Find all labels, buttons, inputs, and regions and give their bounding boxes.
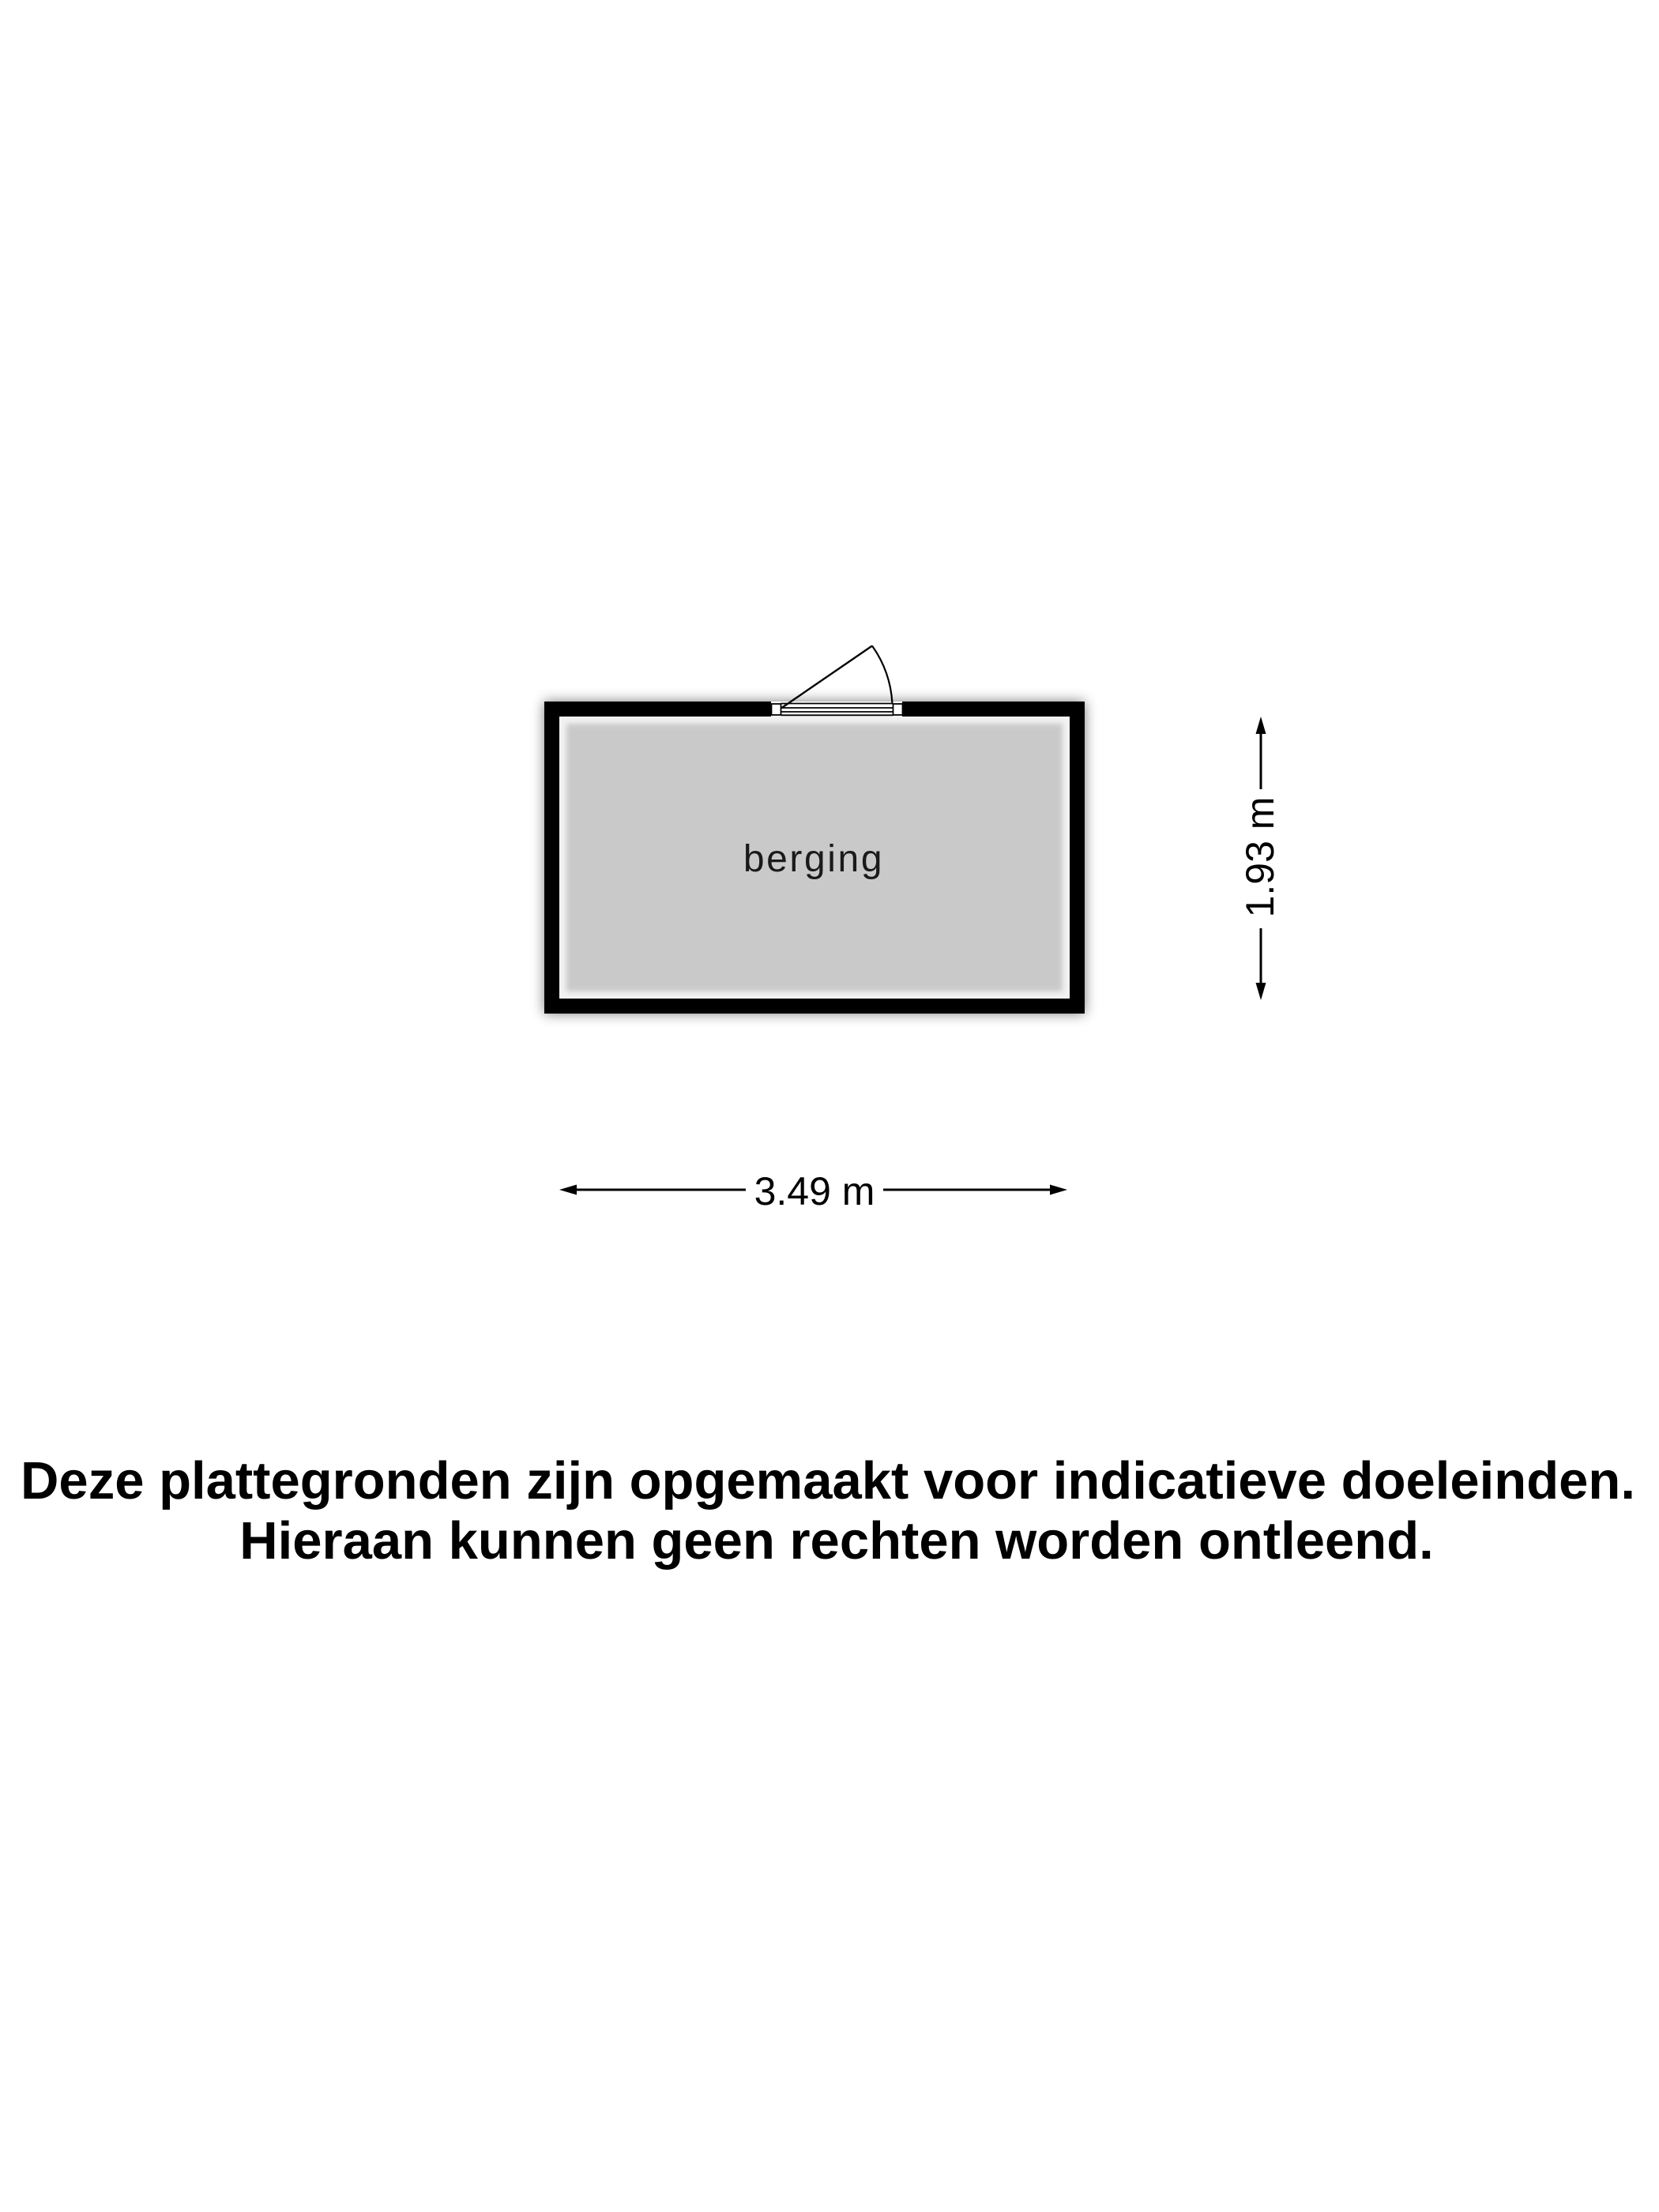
- svg-text:Hieraan kunnen geen rechten wo: Hieraan kunnen geen rechten worden ontle…: [239, 1511, 1434, 1571]
- svg-text:Deze plattegronden zijn opgema: Deze plattegronden zijn opgemaakt voor i…: [21, 1451, 1635, 1510]
- svg-text:3.49 m: 3.49 m: [754, 1169, 875, 1213]
- svg-text:berging: berging: [743, 838, 884, 880]
- svg-text:1.93 m: 1.93 m: [1238, 797, 1282, 918]
